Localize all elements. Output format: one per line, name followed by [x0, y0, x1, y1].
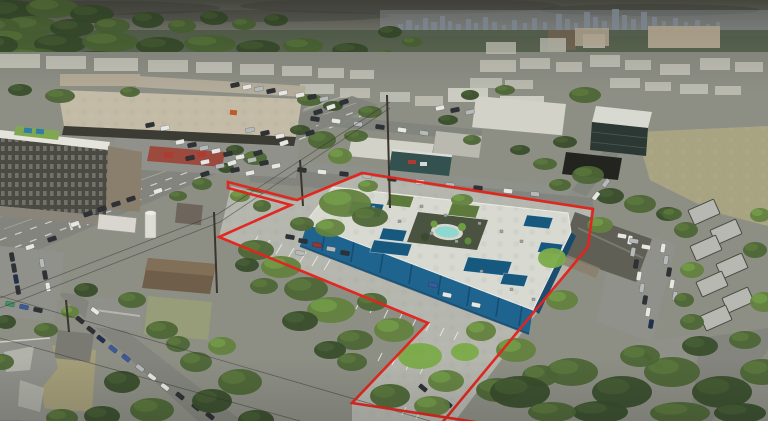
vignette	[0, 0, 768, 421]
aerial-photo-canvas	[0, 0, 768, 421]
aerial-photo: Aerial drone photo of a blue-painted fla…	[0, 0, 768, 421]
